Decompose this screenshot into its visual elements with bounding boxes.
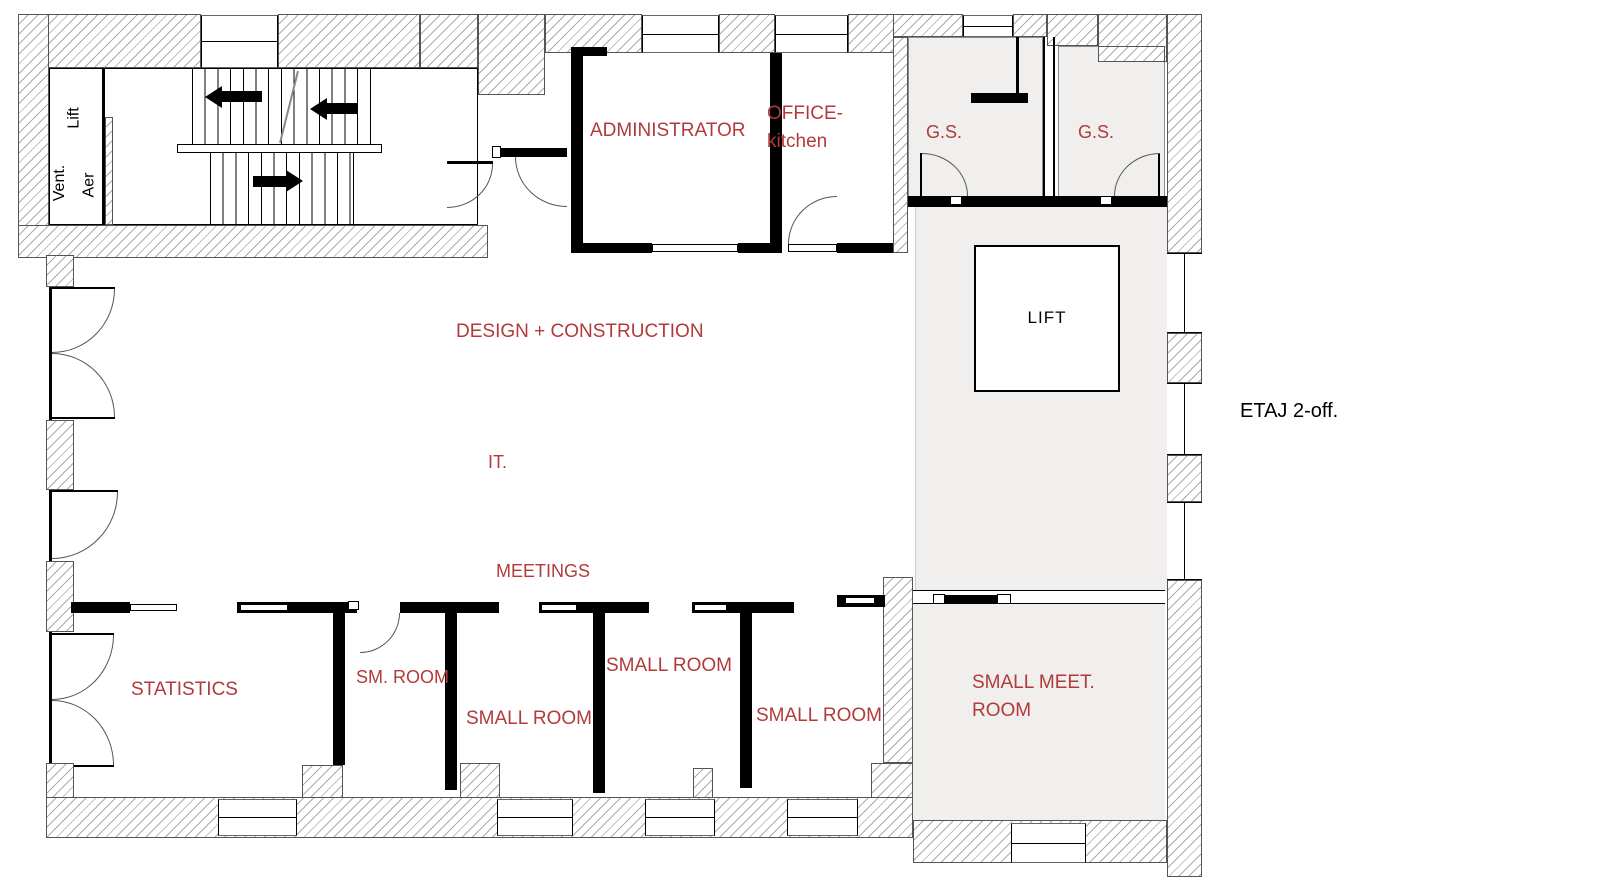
lift-cab: LIFT <box>974 245 1120 392</box>
wall-segment <box>1043 37 1045 198</box>
door-leaf <box>788 244 837 252</box>
window <box>218 799 297 836</box>
door-swing <box>788 196 837 244</box>
door-leaf <box>240 604 288 611</box>
stair-arrow-left-icon <box>205 86 222 108</box>
wall-segment <box>1016 37 1019 95</box>
floor-plan: LIFT Lift <box>0 0 1602 877</box>
wall-segment <box>893 14 963 37</box>
wall-segment <box>302 765 343 798</box>
wall-segment <box>883 577 913 763</box>
wall-segment <box>1053 37 1055 198</box>
room-label-small-room-b: SMALL ROOM <box>466 709 592 730</box>
door-jamb <box>933 594 945 604</box>
window <box>497 799 573 836</box>
stair-treads-lower <box>210 153 354 224</box>
window <box>1167 253 1202 333</box>
room-label-gs-left: G.S. <box>926 123 962 143</box>
door-jamb <box>997 594 1011 604</box>
room-label-small-room-c: SMALL ROOM <box>756 706 882 727</box>
wall-segment <box>719 14 775 53</box>
door-swing <box>360 613 400 653</box>
room-label-small-meet-line1: SMALL MEET. <box>972 673 1095 694</box>
door-leaf <box>541 604 577 611</box>
wall-segment <box>740 602 752 788</box>
wall-segment <box>1167 455 1202 502</box>
door-jamb <box>950 196 962 205</box>
wall-segment <box>46 797 913 838</box>
room-label-office-line2: kitchen <box>767 132 827 153</box>
wall-segment <box>46 561 74 632</box>
stair-arrow-shaft <box>327 103 357 114</box>
wall-segment <box>1167 14 1202 253</box>
room-label-statistics: STATISTICS <box>131 680 238 701</box>
wall-segment <box>18 14 49 258</box>
wall-segment <box>571 243 652 253</box>
door-swing <box>515 157 567 207</box>
window <box>1167 383 1202 455</box>
wall-segment <box>1098 46 1165 62</box>
wall-segment <box>848 14 895 53</box>
wall-segment <box>445 602 457 790</box>
door-swing <box>52 700 114 765</box>
wall-segment <box>478 14 545 95</box>
stair-arrow-shaft <box>222 91 262 102</box>
door-jamb <box>492 146 501 158</box>
wall-segment <box>46 763 74 799</box>
door-jamb <box>348 601 359 610</box>
window <box>1011 823 1086 863</box>
door-swing <box>52 353 115 417</box>
wall-segment <box>571 47 583 253</box>
wall-segment <box>1167 333 1202 383</box>
wall-segment <box>1167 580 1202 877</box>
room-label-lift: LIFT <box>1028 309 1067 328</box>
door-swing <box>447 164 493 208</box>
door-swing <box>52 635 114 700</box>
window <box>201 15 278 68</box>
wall-segment <box>1013 14 1047 37</box>
door-leaf <box>652 244 738 252</box>
wall-segment <box>593 602 605 793</box>
wall-segment <box>738 243 774 253</box>
wall-segment <box>971 93 1028 103</box>
stair-arrow-right-icon <box>286 170 303 192</box>
room-small-meet <box>913 604 1165 823</box>
room-label-small-meet-line2: ROOM <box>972 701 1031 722</box>
room-label-small-room-a: SMALL ROOM <box>606 656 732 677</box>
door-leaf <box>52 417 115 419</box>
window <box>1167 502 1202 580</box>
wall-segment <box>893 37 908 253</box>
window <box>645 799 715 836</box>
wall-segment <box>571 47 607 56</box>
door-leaf <box>694 604 727 611</box>
wall-segment <box>871 763 913 800</box>
window <box>787 799 858 836</box>
door-leaf <box>130 604 177 611</box>
wall-segment <box>333 602 345 765</box>
floor-label: ETAJ 2-off. <box>1240 400 1338 422</box>
stair-landing <box>177 144 382 153</box>
room-label-aer: Aer <box>68 155 110 215</box>
window <box>642 15 719 53</box>
door-jamb <box>1100 196 1112 205</box>
wall-segment <box>693 768 713 798</box>
wall-segment <box>908 196 1167 207</box>
room-label-sm-room: SM. ROOM <box>356 668 449 688</box>
room-label-lift-shaft: Lift <box>52 86 98 150</box>
room-label-meetings: MEETINGS <box>496 562 590 582</box>
room-label-administrator: ADMINISTRATOR <box>590 121 746 142</box>
wall-segment <box>420 14 478 68</box>
door-leaf <box>500 148 567 157</box>
wall-segment <box>460 763 500 798</box>
wall-segment <box>770 53 782 253</box>
wall-segment <box>18 225 488 258</box>
room-label-gs-right: G.S. <box>1078 123 1114 143</box>
stair-arrow-left-icon <box>310 98 327 120</box>
wall-segment <box>71 602 130 613</box>
door-leaf <box>945 595 997 604</box>
room-label-office-line1: OFFICE- <box>767 104 843 125</box>
stair-arrow-shaft <box>253 176 286 187</box>
window <box>775 15 848 53</box>
wall-segment <box>878 246 893 253</box>
wall-segment <box>46 420 74 490</box>
room-label-design-construction: DESIGN + CONSTRUCTION <box>456 322 704 343</box>
wall-segment <box>278 14 420 68</box>
door-leaf <box>845 597 875 604</box>
wall-segment <box>46 255 74 287</box>
room-label-it: IT. <box>488 453 507 473</box>
door-swing <box>52 289 115 353</box>
window <box>963 15 1013 37</box>
door-swing <box>52 492 118 559</box>
